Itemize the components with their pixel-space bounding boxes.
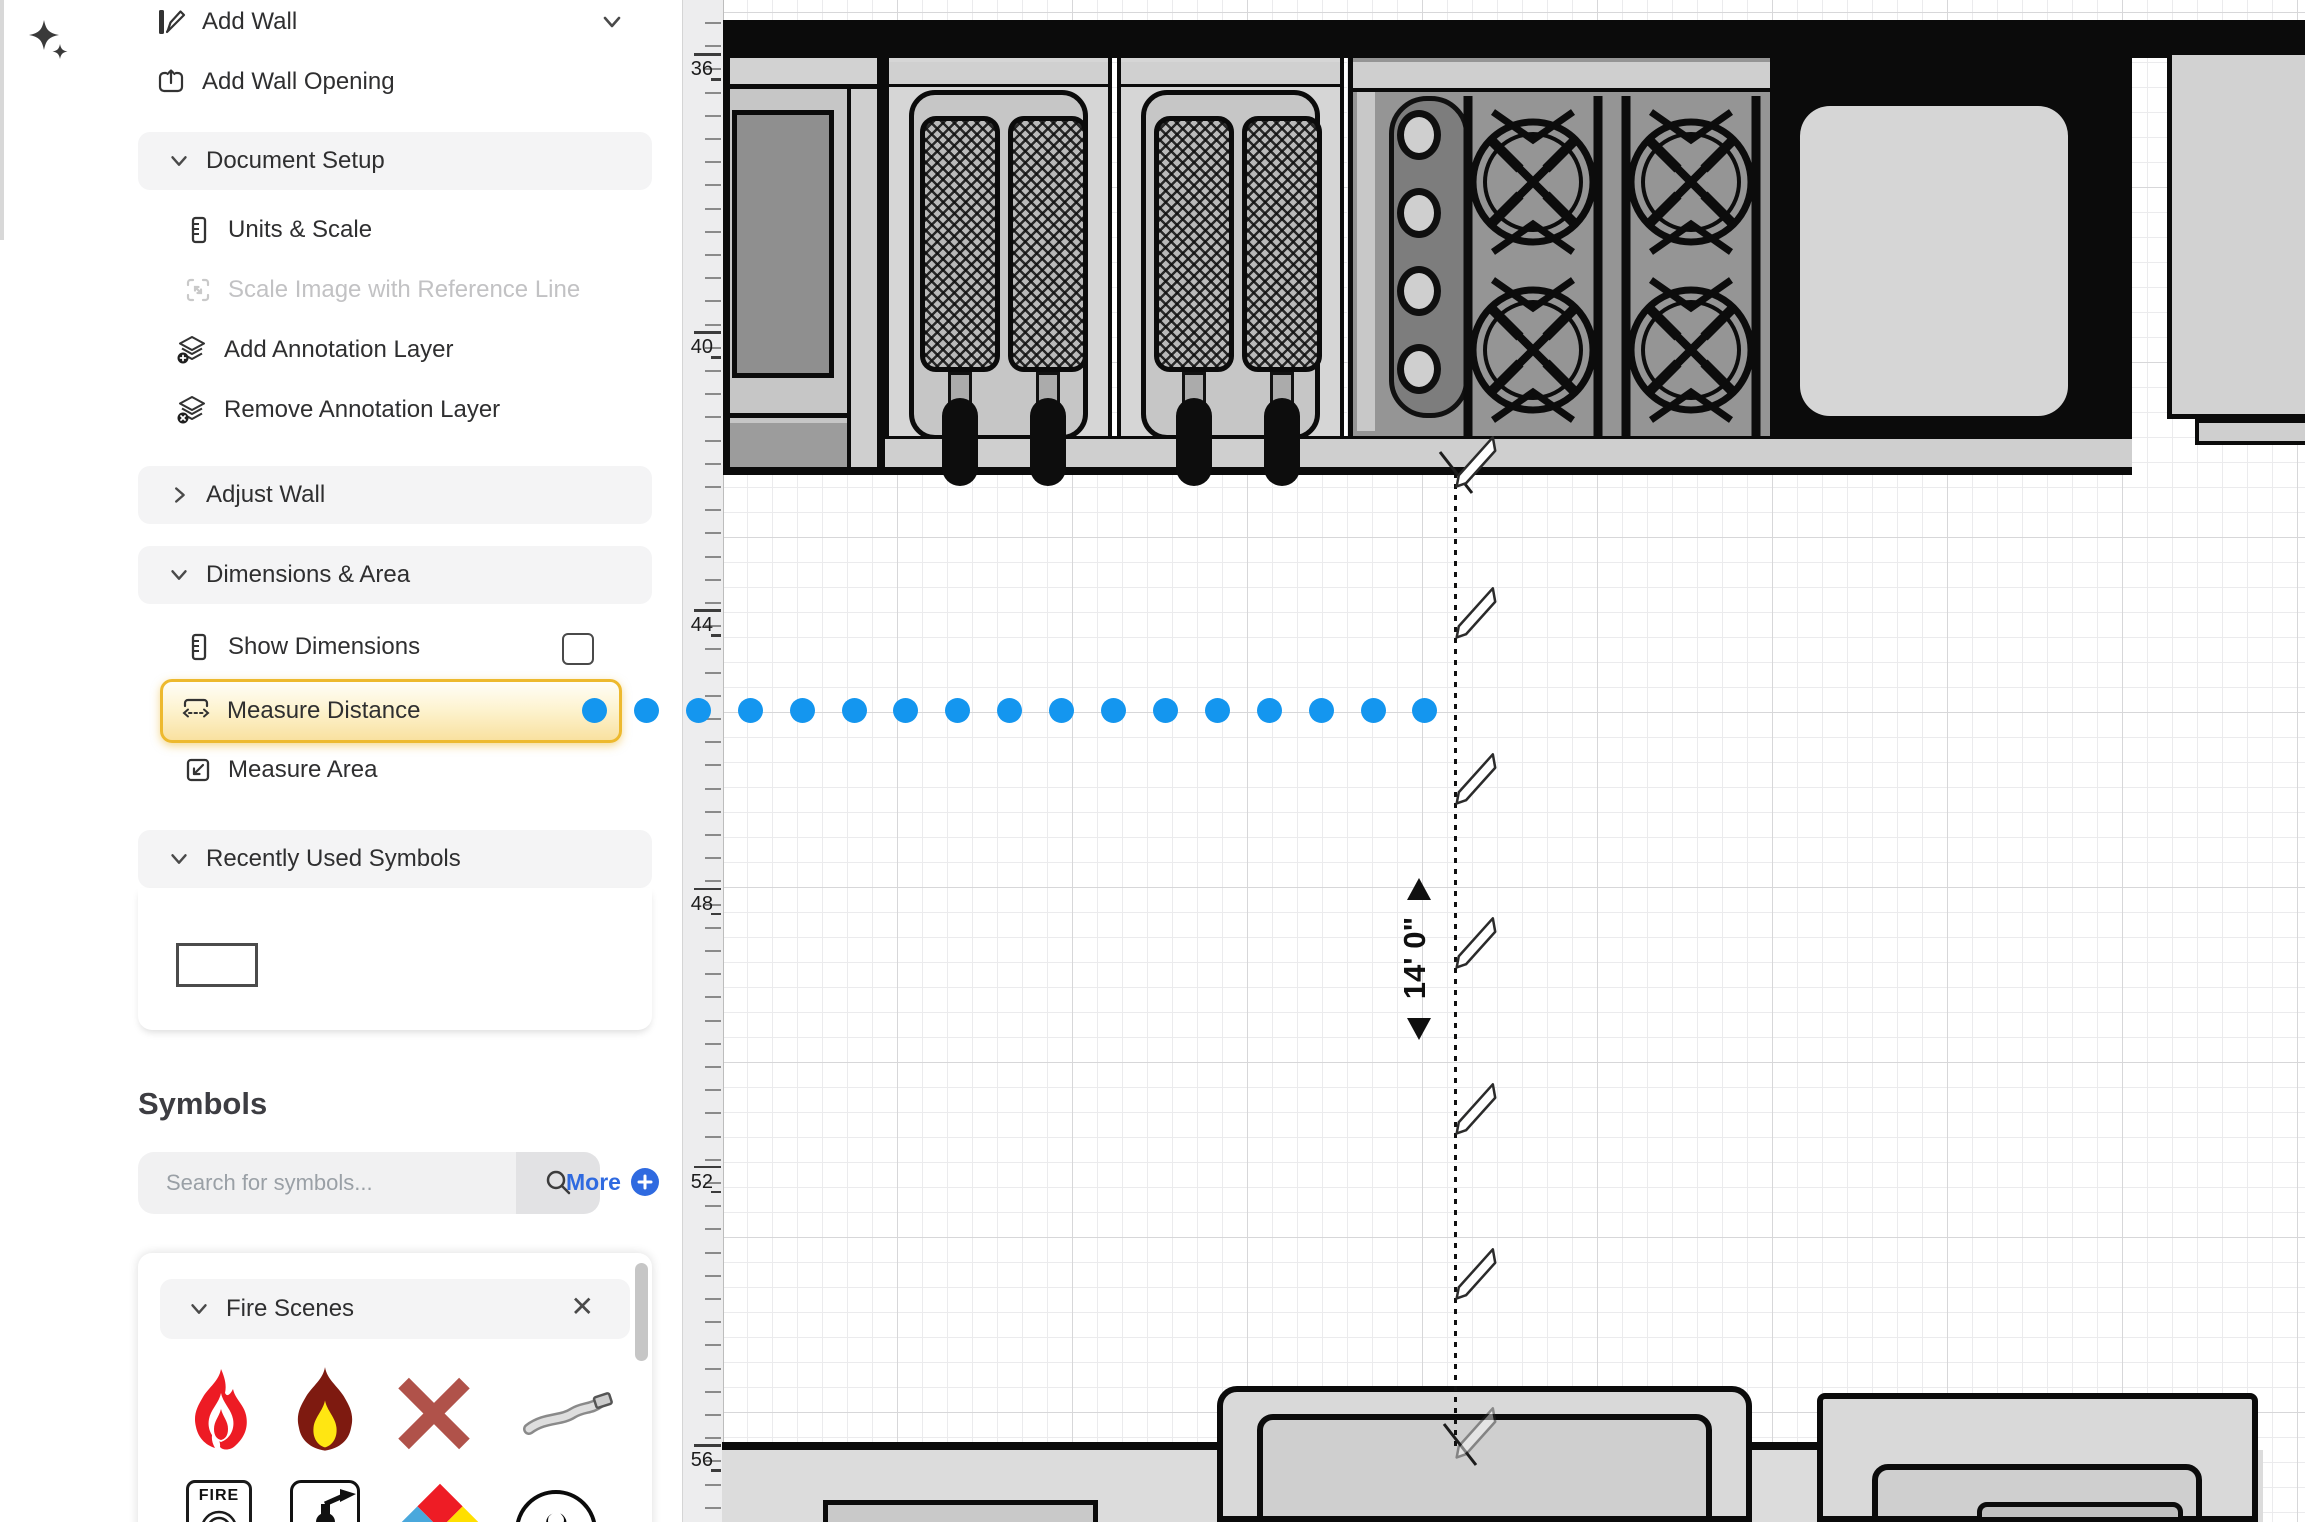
ruler-tick (705, 138, 721, 140)
sidebar-item-add-wall[interactable]: Add Wall (156, 0, 297, 44)
measure-trail-dot (842, 698, 867, 723)
scale-image-icon (184, 276, 212, 304)
sidebar-item-units-scale[interactable]: Units & Scale (184, 208, 372, 252)
ruler-tick (705, 857, 721, 859)
recent-symbol-rectangle[interactable] (176, 943, 258, 987)
measure-trail-dot (686, 698, 711, 723)
ruler-tick (705, 45, 721, 47)
sidebar-item-add-annotation-layer[interactable]: Add Annotation Layer (176, 328, 454, 372)
range-burners (1462, 96, 1762, 444)
chevron-down-icon (166, 148, 192, 174)
range-knob[interactable] (1397, 110, 1441, 160)
ruler-tick (705, 231, 721, 233)
sidebar-item-label: Measure Area (228, 756, 377, 784)
ruler-tick (705, 22, 721, 24)
measure-trail-dot (634, 698, 659, 723)
ruler-tick (705, 324, 721, 326)
chevron-down-icon (166, 846, 192, 872)
ruler-tick (705, 277, 721, 279)
symbol-hose[interactable] (518, 1373, 618, 1453)
fryer-handle-grip (1030, 398, 1066, 486)
measure-trail-dot (1153, 698, 1178, 723)
ruler-tick (705, 1484, 721, 1486)
sidebar-item-remove-annotation-layer[interactable]: Remove Annotation Layer (176, 388, 500, 432)
section-header-recently-used-symbols[interactable]: Recently Used Symbols (138, 830, 652, 888)
counter-inset (732, 110, 834, 378)
ruler-major-tick (694, 888, 721, 891)
section-header-dimensions-area[interactable]: Dimensions & Area (138, 546, 652, 604)
sidebar-item-label: Add Wall Opening (202, 68, 395, 96)
dimension-label: 14' 0" (1397, 898, 1441, 1018)
ruler-tick (705, 1112, 721, 1114)
sidebar-item-label: Remove Annotation Layer (224, 396, 500, 424)
fryer-handle-grip (942, 398, 978, 486)
ruler-label: 52 (691, 1171, 713, 1194)
equipment-right-cabinet[interactable] (2167, 50, 2305, 419)
ruler-minor-tick (711, 634, 721, 637)
section-header-label: Adjust Wall (206, 481, 325, 509)
biohazard-glyph: ☣ (535, 1504, 576, 1522)
symbol-nfpa-diamond[interactable] (390, 1479, 490, 1522)
measure-distance-icon (181, 695, 211, 728)
measure-trail-dot (790, 698, 815, 723)
ruler-label: 44 (691, 614, 713, 637)
ruler-tick (705, 927, 721, 929)
measure-trail-dot (1309, 698, 1334, 723)
dimension-arrow-down (1407, 1018, 1431, 1040)
measure-trail-dot (1101, 698, 1126, 723)
ruler-icon (184, 216, 212, 244)
ruler-tick (705, 695, 721, 697)
ruler-tick (705, 416, 721, 418)
bottom-appliance-left[interactable] (823, 1500, 1098, 1522)
equipment-divider (877, 58, 885, 467)
symbol-x-mark[interactable] (386, 1367, 482, 1463)
wall-top[interactable] (723, 20, 2305, 58)
ruler-tick (705, 254, 721, 256)
ruler-minor-tick (711, 1469, 721, 1472)
chevron-down-icon (186, 1296, 212, 1322)
ruler-tick (705, 996, 721, 998)
close-icon[interactable]: ✕ (571, 1293, 594, 1321)
ruler-tick (705, 1507, 721, 1509)
ai-sparkle-icon[interactable] (24, 18, 72, 66)
symbol-flame[interactable] (176, 1363, 266, 1463)
ruler-tick (705, 602, 721, 604)
ruler-major-tick (694, 1444, 721, 1447)
ruler-major-tick (694, 609, 721, 612)
ruler-tick (705, 1414, 721, 1416)
sidebar-item-measure-area[interactable]: Measure Area (184, 748, 377, 792)
ruler-icon (184, 633, 212, 661)
ruler-tick (705, 1066, 721, 1068)
ruler-tick (705, 115, 721, 117)
ruler-tick (705, 1252, 721, 1254)
ruler-tick (705, 1089, 721, 1091)
ruler-minor-tick (711, 1191, 721, 1194)
ruler-tick (705, 161, 721, 163)
ruler-tick (705, 1321, 721, 1323)
equipment-right-cabinet-tab (2195, 419, 2305, 445)
sidebar-item-label: Add Wall (202, 8, 297, 36)
sidebar-item-label: Show Dimensions (228, 633, 420, 661)
ruler-tick (705, 486, 721, 488)
symbol-fire-alarm[interactable]: FIRE (174, 1475, 264, 1522)
fryer-basket[interactable] (1008, 116, 1088, 372)
fryer-basket[interactable] (920, 116, 1000, 372)
measure-trail-dot (582, 698, 607, 723)
ruler-tick (705, 764, 721, 766)
sidebar-item-show-dimensions[interactable]: Show Dimensions (184, 625, 420, 669)
ruler-tick (705, 92, 721, 94)
ruler-tick (705, 463, 721, 465)
ruler-tick (705, 184, 721, 186)
ruler-tick (705, 741, 721, 743)
vertical-ruler: 364044485256 (682, 0, 724, 1522)
wall-opening-icon (156, 67, 186, 97)
fryer-basket[interactable] (1242, 116, 1322, 372)
ruler-tick (705, 509, 721, 511)
tool-sidebar: Add Wall Add Wall Opening Document Setup (90, 0, 682, 1522)
ruler-minor-tick (711, 913, 721, 916)
sidebar-item-add-wall-opening[interactable]: Add Wall Opening (156, 60, 395, 104)
search-input[interactable] (138, 1152, 516, 1214)
ruler-label: 48 (691, 893, 713, 916)
measure-trail-dot (1049, 698, 1074, 723)
equipment-counter[interactable] (730, 58, 877, 467)
ruler-tick (705, 811, 721, 813)
recently-used-symbols-panel (138, 888, 652, 1030)
section-header-adjust-wall[interactable]: Adjust Wall (138, 466, 652, 524)
ruler-tick (705, 579, 721, 581)
sidebar-item-label: Add Annotation Layer (224, 336, 454, 364)
ruler-tick (705, 672, 721, 674)
ruler-tick (705, 1136, 721, 1138)
chevron-down-icon (166, 562, 192, 588)
equipment-front-line (723, 467, 2132, 475)
ruler-major-tick (694, 53, 721, 56)
ruler-tick (705, 370, 721, 372)
measure-trail-dot (738, 698, 763, 723)
sidebar-item-label: Measure Distance (227, 697, 420, 725)
fire-scenes-header[interactable]: Fire Scenes ✕ (160, 1279, 630, 1339)
ruler-major-tick (694, 1166, 721, 1169)
sidebar-item-scale-image-reference-line: Scale Image with Reference Line (184, 268, 580, 312)
ruler-minor-tick (711, 356, 721, 359)
fryer-handle-grip (1176, 398, 1212, 486)
ruler-tick (705, 880, 721, 882)
section-header-label: Recently Used Symbols (206, 845, 461, 873)
section-header-label: Dimensions & Area (206, 561, 410, 589)
measure-area-icon (184, 756, 212, 784)
ruler-tick (705, 1391, 721, 1393)
fire-scenes-panel: Fire Scenes ✕ (138, 1253, 652, 1522)
ruler-label: 56 (691, 1449, 713, 1472)
ruler-minor-tick (711, 78, 721, 81)
window-edge (0, 0, 4, 240)
wall-pen-icon (156, 7, 186, 37)
ruler-tick (705, 648, 721, 650)
ruler-label: 40 (691, 336, 713, 359)
ruler-tick (705, 1275, 721, 1277)
ruler-tick (705, 1205, 721, 1207)
fire-scenes-label: Fire Scenes (226, 1295, 354, 1323)
app-window: Add Wall Add Wall Opening Document Setup (0, 0, 2305, 1522)
add-layer-icon (176, 335, 208, 365)
dimension-arrow-up (1407, 878, 1431, 900)
measure-trail-dot (1361, 698, 1386, 723)
fryer-handle-grip (1264, 398, 1300, 486)
ruler-tick (705, 1043, 721, 1045)
ruler-tick (705, 532, 721, 534)
ruler-tick (705, 834, 721, 836)
fryer-basket[interactable] (1154, 116, 1234, 372)
chevron-right-icon (166, 482, 192, 508)
sidebar-item-label: Units & Scale (228, 216, 372, 244)
sidebar-item-measure-distance-active[interactable]: Measure Distance (160, 679, 622, 743)
symbol-search (138, 1152, 600, 1214)
remove-layer-icon (176, 395, 208, 425)
ruler-tick (705, 393, 721, 395)
symbol-biohazard[interactable]: ☣ (506, 1481, 606, 1522)
symbol-fire-extinguisher[interactable] (280, 1475, 370, 1522)
measure-trail-dot (1257, 698, 1282, 723)
ruler-tick (705, 1020, 721, 1022)
section-header-label: Document Setup (206, 147, 385, 175)
symbols-title: Symbols (138, 1086, 267, 1122)
bottom-appliance-right-inner2 (1977, 1502, 2183, 1522)
range-knob[interactable] (1397, 344, 1441, 394)
ruler-major-tick (694, 331, 721, 334)
ruler-tick (705, 1228, 721, 1230)
ruler-tick (705, 950, 721, 952)
range-knob[interactable] (1397, 188, 1441, 238)
plus-icon (631, 1168, 659, 1196)
chevron-down-icon[interactable] (598, 8, 626, 36)
range-knob[interactable] (1397, 266, 1441, 316)
measure-trail-dot (1205, 698, 1230, 723)
ruler-tick (705, 300, 721, 302)
equipment-griddle-surface (1800, 106, 2068, 416)
left-toolbar-rail (0, 0, 91, 1522)
ruler-label: 36 (691, 58, 713, 81)
ruler-tick (705, 440, 721, 442)
ruler-tick (705, 1159, 721, 1161)
ruler-tick (705, 973, 721, 975)
ruler-tick (705, 1368, 721, 1370)
symbol-flame-yellow-core[interactable] (280, 1363, 370, 1463)
equipment-front-band (885, 436, 2132, 467)
show-dimensions-checkbox[interactable] (562, 633, 594, 665)
sidebar-item-label: Scale Image with Reference Line (228, 276, 580, 304)
scrollbar-thumb[interactable] (635, 1263, 648, 1361)
fire-alarm-text: FIRE (199, 1487, 239, 1505)
ruler-tick (705, 1298, 721, 1300)
ruler-tick (705, 1344, 721, 1346)
more-symbols-link[interactable]: More (566, 1168, 659, 1196)
wall-left-edge (723, 20, 730, 467)
ruler-tick (705, 788, 721, 790)
ruler-tick (705, 556, 721, 558)
section-header-document-setup[interactable]: Document Setup (138, 132, 652, 190)
more-label: More (566, 1169, 621, 1196)
ruler-tick (705, 1437, 721, 1439)
ruler-tick (705, 208, 721, 210)
